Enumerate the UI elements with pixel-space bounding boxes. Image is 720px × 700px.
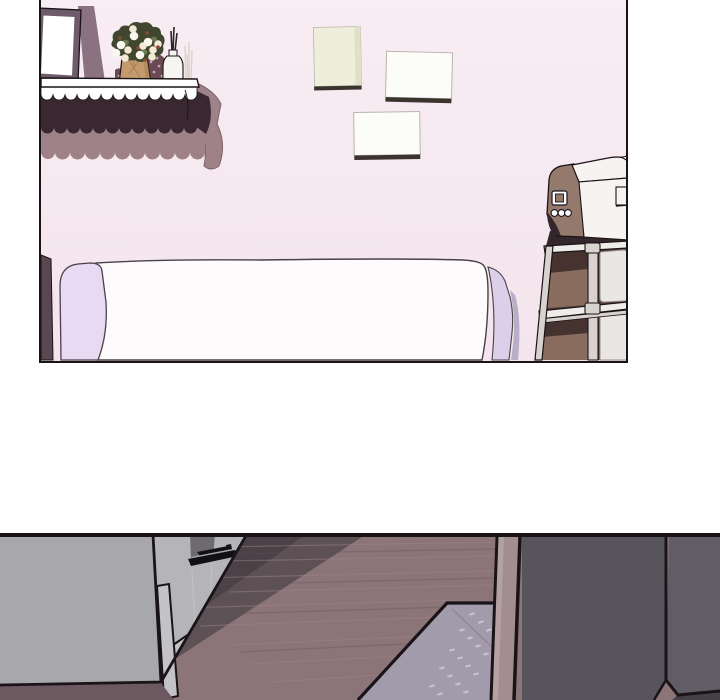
- bed: [41, 255, 519, 360]
- flower-bud: [143, 58, 147, 62]
- bedside-dark-edge: [41, 255, 53, 360]
- dried-stick: [185, 46, 186, 80]
- printer-cart: [535, 156, 626, 360]
- flower: [129, 25, 137, 33]
- printer-display-screen: [556, 194, 564, 202]
- comic-page: [0, 0, 720, 700]
- cart-bin-white-lower: [600, 314, 626, 360]
- flower: [136, 51, 145, 60]
- bedroom-scene: [41, 0, 626, 361]
- printer-button: [551, 210, 558, 217]
- wall-canvas-portrait: [313, 27, 362, 91]
- panel-floor: [0, 533, 720, 700]
- flower: [117, 41, 126, 50]
- flower: [139, 42, 147, 50]
- printer-buttons: [551, 210, 571, 217]
- flower-bud: [156, 45, 160, 49]
- bed-duvet: [96, 259, 488, 360]
- flower: [130, 32, 139, 41]
- canvas-face: [313, 27, 361, 87]
- flower-bud: [118, 36, 122, 40]
- flower: [148, 53, 156, 61]
- cabinet-front: [0, 537, 161, 685]
- cart-bin-white-upper: [600, 250, 626, 302]
- printer-button: [565, 210, 572, 217]
- shelf-board: [41, 78, 199, 87]
- picture-frame-canvas: [41, 15, 75, 76]
- floor-scene: [0, 537, 720, 700]
- cloth-dot: [158, 65, 161, 68]
- bed-pillow: [60, 263, 106, 360]
- canvas-side-shade: [354, 27, 361, 86]
- cart-joint-upper: [585, 243, 600, 253]
- flower: [112, 49, 121, 58]
- cloth-dot: [150, 61, 153, 64]
- dark-panel-right: [666, 537, 720, 695]
- dark-panel-main: [522, 537, 666, 700]
- canvas-face: [385, 51, 452, 99]
- cloth-dot: [153, 71, 156, 74]
- flower-bud: [145, 31, 149, 35]
- wall-canvas-landscape-upper: [385, 51, 452, 103]
- printer-button: [558, 210, 565, 217]
- dried-stick: [191, 50, 192, 80]
- dried-stick: [187, 54, 188, 80]
- panel-bedroom: [39, 0, 628, 363]
- flower-bud: [136, 46, 140, 50]
- cart-joint-lower: [585, 303, 600, 314]
- flower: [149, 46, 157, 54]
- wall-canvas-landscape-lower: [354, 112, 421, 160]
- canvas-bottom-edge: [354, 155, 420, 160]
- printer-output-slot: [616, 187, 626, 205]
- flower: [124, 46, 132, 54]
- canvas-face: [354, 112, 421, 156]
- flower: [121, 54, 129, 62]
